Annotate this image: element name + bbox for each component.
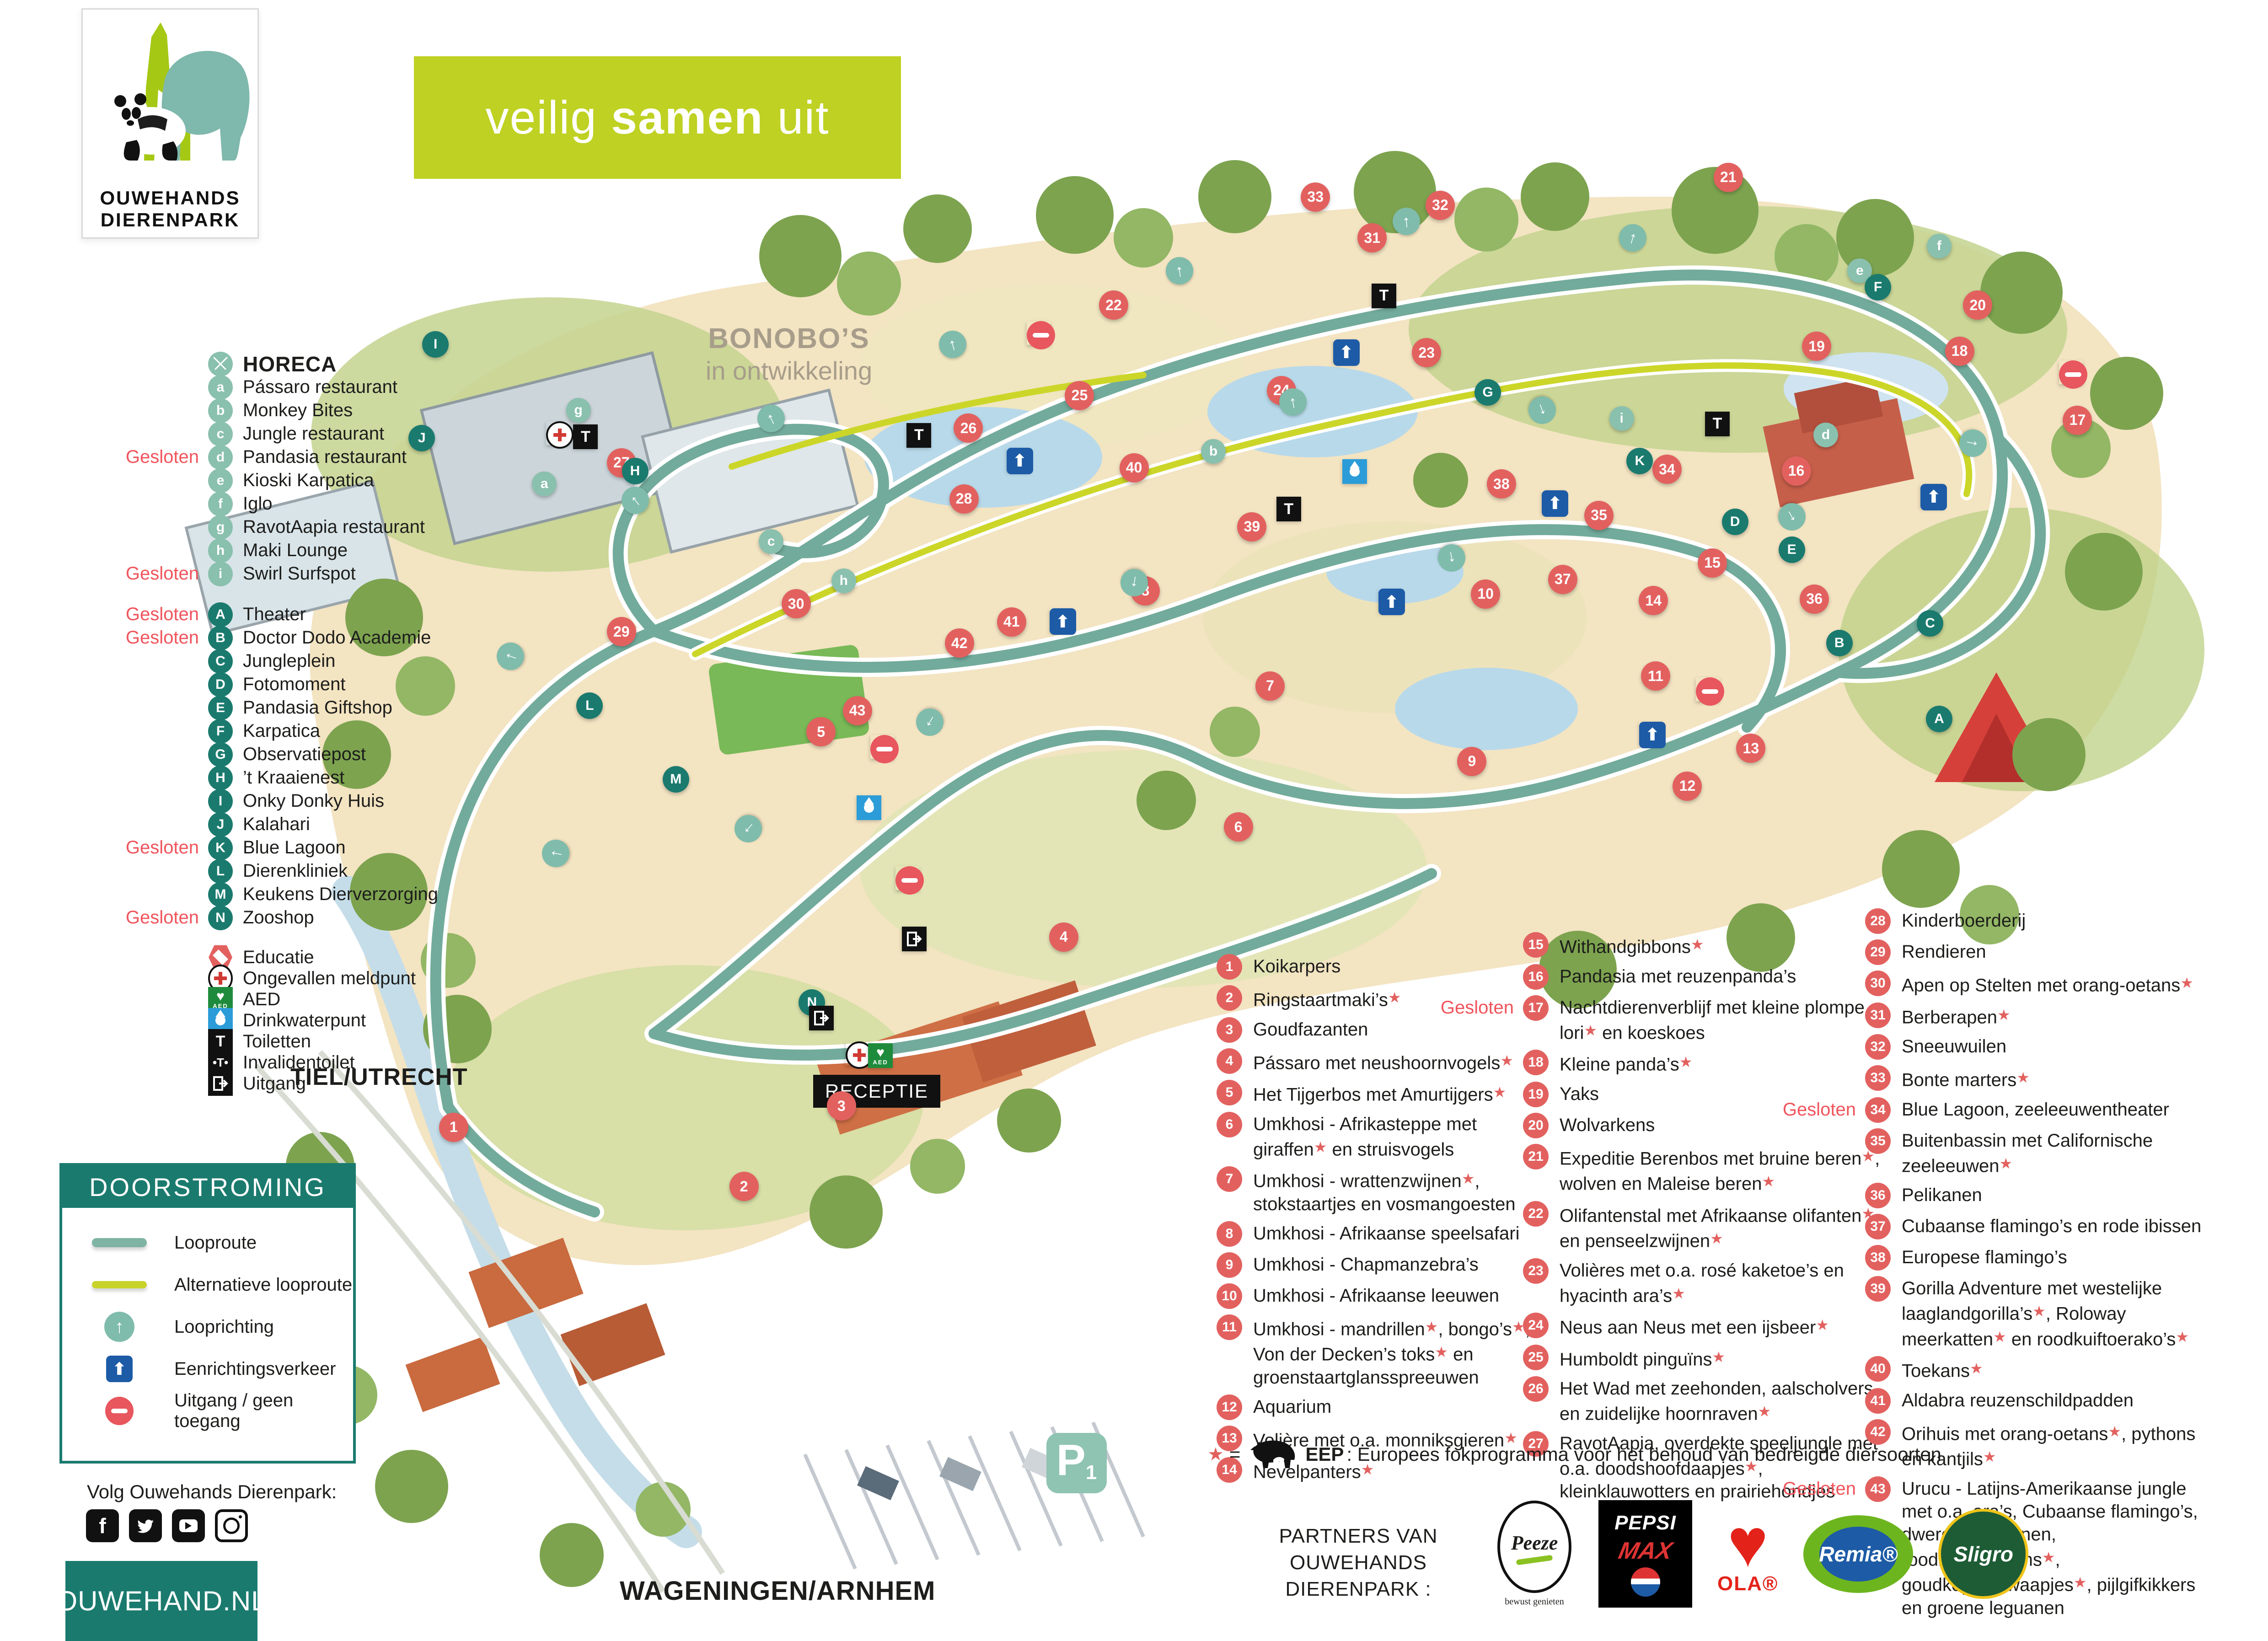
eep-star-mark: ★ [2176,1329,2189,1345]
map-marker-15: 15 [1698,548,1727,578]
doorstroming-label: Alternatieve looproute [174,1275,352,1295]
gesloten-label: Gesloten [1441,996,1514,1019]
doorstroming-title: DOORSTROMING [62,1166,353,1208]
horeca-item-i: Gesloten i Swirl Surfspot [208,562,734,585]
banner-bold: samen [611,91,763,144]
enclosure-item-40: 40 Toekans★ [1865,1357,2217,1383]
enclosure-label: Sneeuwuilen [1902,1035,2006,1060]
toilet-icon: T [1372,284,1396,308]
eep-star-mark: ★ [1493,1084,1507,1100]
enclosure-item-32: 32 Sneeuwuilen [1865,1035,2217,1060]
walking-direction-icon: ↑ [1616,221,1650,255]
map-marker-30: 30 [782,589,811,618]
map-marker-D: D [1722,509,1748,535]
enclosure-label: Europese flamingo’s [1902,1246,2067,1271]
map-exit-icon [809,1006,833,1030]
enclosure-badge-17: 17 [1523,995,1549,1021]
enclosure-label: Kleine panda’s★ [1560,1051,1692,1076]
location-badge-G: G [208,742,233,767]
banner-text: veilig samen uit [485,91,829,145]
enclosure-label: Cubaanse flamingo’s en rode ibissen [1902,1215,2201,1239]
map-marker-36: 36 [1800,585,1829,614]
map-marker-18: 18 [1945,337,1974,366]
enclosure-item-25: 25 Humboldt pinguïns★ [1523,1346,1898,1371]
max-word: MAX [1616,1537,1674,1565]
eep-star-mark: ★ [1435,1344,1448,1360]
enclosure-label: Orihuis met orang-oetans★, pythons en ka… [1902,1420,2217,1471]
enclosure-label: Aquarium [1253,1395,1331,1420]
location-item-C: C Jungleplein [208,649,734,673]
horeca-badge-h: h [208,538,233,563]
enclosure-badge-29: 29 [1865,939,1891,965]
partner-logos: Peeze bewust genieten PEPSI MAX ♥ OLA® R… [1496,1500,2028,1608]
enclosure-item-21: 21 Expeditie Berenbos met bruine beren★,… [1523,1145,1898,1196]
gesloten-label: Gesloten [126,627,199,648]
facility-label: Uitgang [243,1073,306,1094]
location-item-J: J Kalahari [208,813,734,836]
enclosure-label: Ringstaartmaki’s★ [1253,986,1401,1012]
map-oneway-icon: ⬆ [1542,490,1566,514]
map-marker-22: 22 [1099,290,1128,320]
sligro-logo: Sligro [1938,1509,2028,1599]
enclosure-label: Buitenbassin met Californische zeeleeuwe… [1902,1129,2217,1178]
map-marker-B: B [1826,630,1853,656]
enclosure-badge-15: 15 [1523,932,1549,958]
banner-pre: veilig [485,91,611,144]
enclosure-label: Umkhosi - mandrillen★, bongo’s★, Von der… [1253,1315,1537,1389]
map-marker-F: F [1865,274,1891,300]
ola-logo: ♥ OLA® [1717,1513,1778,1595]
enclosure-badge-16: 16 [1523,964,1549,990]
horeca-label: Pandasia restaurant [243,447,407,467]
map-marker-12: 12 [1673,772,1702,801]
alt-walking-route-icon [92,1281,147,1288]
enclosure-label: Bonte marters★ [1902,1066,2030,1092]
map-marker-17: 17 [2063,406,2092,435]
eep-star-mark: ★ [1983,1448,1996,1465]
enclosure-label: Blue Lagoon, zeeleeuwentheater [1902,1098,2169,1123]
doorstroming-item-noentry: Uitgang / geen toegang [90,1390,353,1432]
enclosure-item-3: 3 Goudfazanten [1217,1018,1537,1043]
walking-direction-icon: ↑ [1525,393,1560,428]
map-oneway-icon: ⬆ [1050,608,1073,632]
map-marker-9: 9 [1457,747,1486,776]
enclosure-label: Neus aan Neus met een ijsbeer★ [1560,1314,1829,1339]
enclosure-label: Gorilla Adventure met westelijke laaglan… [1902,1277,2217,1351]
location-label: ’t Kraaienest [243,767,344,788]
enclosure-badge-22: 22 [1523,1201,1549,1227]
eep-star-mark: ★ [1997,1007,2011,1023]
horeca-label: Iglo [243,493,273,514]
walking-route-icon [92,1238,147,1247]
location-item-D: D Fotomoment [208,673,734,696]
enclosure-badge-8: 8 [1217,1221,1242,1247]
enclosure-badge-9: 9 [1217,1252,1242,1278]
horeca-badge-a: a [208,375,233,400]
enclosure-badge-24: 24 [1523,1313,1549,1338]
facility-item-aed: ♥AED AED [208,989,734,1010]
enclosure-item-4: 4 Pássaro met neushoornvogels★ [1217,1049,1537,1075]
enclosure-item-33: 33 Bonte marters★ [1865,1066,2217,1092]
enclosure-badge-40: 40 [1865,1356,1891,1382]
enclosure-item-7: 7 Umkhosi - wrattenzwijnen★, stokstaartj… [1217,1167,1537,1216]
eep-star-mark: ★ [2108,1423,2121,1440]
enclosure-item-26: 26 Het Wad met zeehonden, aalscholvers e… [1523,1377,1898,1426]
eep-note: ★ = EEP : Europees fokprogramma voor het… [1207,1436,1941,1473]
eep-star-mark: ★ [2180,975,2193,991]
one-way-icon: ⬆ [1050,608,1076,635]
doorstroming-label: Looproute [174,1233,257,1253]
horeca-title: HORECA [243,352,337,376]
enclosure-badge-23: 23 [1523,1258,1549,1284]
location-badge-J: J [208,812,233,837]
location-label: Pandasia Giftshop [243,697,392,718]
walking-direction-icon: ↑ [1773,498,1811,536]
no-entry-icon [895,866,924,895]
enclosure-badge-2: 2 [1217,985,1242,1011]
eep-star-mark: ★ [2000,1155,2013,1172]
enclosure-item-28: 28 Kinderboerderij [1865,909,2217,934]
map-oneway-icon: ⬆ [1920,484,1944,508]
map-noentry-icon [895,866,919,890]
enclosure-label: Umkhosi - wrattenzwijnen★, stokstaartjes… [1253,1167,1537,1216]
banner-post: uit [763,91,829,144]
facility-label: Ongevallen meldpunt [243,968,416,989]
enclosure-badge-19: 19 [1523,1082,1549,1107]
eep-star-mark: ★ [1970,1360,1983,1377]
enclosure-badge-35: 35 [1865,1128,1891,1154]
walking-direction-icon: ↑ [1436,542,1468,574]
enclosure-item-22: 22 Olifantenstal met Afrikaanse olifante… [1523,1202,1898,1253]
enclosure-label: Nachtdierenverblijf met kleine plompe lo… [1560,996,1898,1045]
park-logo: OUWEHANDS DIERENPARK [81,8,259,239]
map-marker-31: 31 [1357,223,1387,252]
location-badge-H: H [208,766,233,790]
enclosure-label: Umkhosi - Afrikaanse leeuwen [1253,1284,1499,1309]
enclosure-item-9: 9 Umkhosi - Chapmanzebra’s [1217,1253,1537,1278]
enclosure-item-29: 29 Rendieren [1865,940,2217,965]
horeca-item-c: c Jungle restaurant [208,422,734,445]
enclosure-label: Kinderboerderij [1902,909,2026,934]
enclosure-label: Wolvarkens [1560,1114,1655,1138]
map-marker-40: 40 [1120,453,1149,483]
location-item-F: F Karpatica [208,719,734,743]
eep-bold: EEP [1305,1443,1344,1465]
location-badge-N: N [208,906,233,930]
horeca-item-h: h Maki Lounge [208,539,734,562]
pepsi-max-logo: PEPSI MAX [1598,1500,1692,1608]
website-box[interactable]: OUWEHAND.NL [65,1561,257,1641]
map-noentry-icon [870,735,894,759]
location-label: Kalahari [243,814,310,835]
enclosure-label: Pandasia met reuzenpanda’s [1560,965,1796,990]
map-marker-37: 37 [1548,565,1577,594]
facility-label: Drinkwaterpunt [243,1010,366,1031]
horeca-label: Swirl Surfspot [243,563,356,584]
toilet-icon: T [1705,412,1730,436]
map-marker-38: 38 [1487,469,1516,499]
one-way-icon: ⬆ [1920,484,1947,510]
horeca-label: Monkey Bites [243,400,353,421]
map-toilet-icon: T [1276,497,1300,520]
map-noentry-icon [2059,360,2083,384]
enclosure-label: Expeditie Berenbos met bruine beren★, wo… [1560,1145,1898,1196]
one-way-icon: ⬆ [106,1356,133,1382]
enclosure-badge-31: 31 [1865,1003,1891,1028]
location-label: Theater [243,604,306,625]
eep-star-mark: ★ [1388,989,1401,1006]
horeca-badge-d: d [208,445,233,470]
map-marker-34: 34 [1652,455,1682,484]
map-marker-41: 41 [997,607,1026,637]
map-marker-42: 42 [945,628,974,658]
enclosure-item-1: 1 Koikarpers [1217,955,1537,980]
gesloten-label: Gesloten [126,907,199,928]
map-water-icon [857,795,880,819]
map-firstaid-icon [846,1041,869,1065]
enclosure-item-24: 24 Neus aan Neus met een ijsbeer★ [1523,1314,1898,1339]
map-marker-C: C [1917,610,1943,637]
enclosure-badge-12: 12 [1217,1394,1242,1420]
toilet-icon: T [1276,497,1301,521]
enclosure-item-6: 6 Umkhosi - Afrikasteppe met giraffen★ e… [1217,1113,1537,1161]
location-badge-C: C [208,649,233,674]
eep-star-mark: ★ [1314,1139,1327,1155]
map-aed-icon: ♥AED [868,1043,892,1067]
one-way-icon: ⬆ [1378,589,1405,615]
one-way-icon: ⬆ [1007,448,1033,474]
location-label: Fotomoment [243,674,346,695]
enclosure-label: Aldabra reuzenschildpadden [1902,1389,2134,1414]
enclosure-label: Rendieren [1902,940,1986,965]
facility-item-toilet-disabled: •T• Invalidentoilet [208,1052,734,1073]
enclosure-label: Volières met o.a. rosé kaketoe’s en hyac… [1560,1259,1898,1308]
enclosure-badge-6: 6 [1217,1112,1242,1137]
eep-star-mark: ★ [1758,1403,1771,1420]
social-icons: f [86,1509,248,1542]
enclosure-item-34: Gesloten 34 Blue Lagoon, zeeleeuwentheat… [1865,1098,2217,1123]
map-oneway-icon: ⬆ [1639,722,1663,745]
horeca-list: a Pássaro restaurant b Monkey Bites c Ju… [208,375,734,585]
map-marker-25: 25 [1065,381,1094,410]
walking-direction-icon: ↑ [729,810,768,848]
location-label: Karpatica [243,721,320,741]
facility-item-firstaid: Ongevallen meldpunt [208,968,734,989]
map-water-icon [1342,459,1366,483]
map-marker-2: 2 [729,1172,759,1201]
enclosure-badge-30: 30 [1865,971,1891,996]
ola-heart-icon: ♥ [1717,1513,1778,1572]
location-label: Blue Lagoon [243,837,346,858]
rhino-icon [1246,1436,1301,1473]
map-marker-3: 3 [827,1091,856,1121]
walking-direction-icon: ↑ [753,400,789,437]
enclosure-label: Umkhosi - Afrikasteppe met giraffen★ en … [1253,1113,1537,1161]
map-exit-icon [902,927,926,950]
logo-line2: DIERENPARK [83,209,257,231]
horeca-badge-f: f [208,492,233,516]
enclosure-badge-34: 34 [1865,1097,1891,1123]
ola-name: OLA® [1717,1572,1778,1595]
gesloten-label: Gesloten [1783,1098,1856,1121]
map-marker-E: E [1779,536,1805,563]
enclosure-badge-3: 3 [1217,1017,1242,1043]
location-badge-I: I [208,789,233,814]
peeze-logo: Peeze bewust genieten [1496,1501,1573,1607]
map-marker-c: c [759,529,783,554]
enclosure-label: Het Wad met zeehonden, aalscholvers en z… [1560,1377,1898,1426]
location-item-N: Gesloten N Zooshop [208,906,734,929]
map-marker-5: 5 [806,717,836,746]
map-marker-1: 1 [439,1113,468,1142]
location-label: Dierenkliniek [243,861,348,881]
doorstroming-item-looproute: Looproute [90,1222,353,1264]
enclosure-label: Toekans★ [1902,1357,1983,1383]
toilet-icon: T [906,423,931,448]
partners-line1: PARTNERS VAN [1235,1523,1482,1550]
remia-logo: Remia® [1803,1515,1913,1593]
enclosure-badge-37: 37 [1865,1214,1891,1239]
enclosure-item-31: 31 Berberapen★ [1865,1003,2217,1029]
enclosure-badge-43: 43 [1865,1476,1891,1502]
location-badge-E: E [208,696,233,720]
map-marker-4: 4 [1049,922,1078,952]
enclosure-item-18: 18 Kleine panda’s★ [1523,1051,1898,1076]
map-marker-14: 14 [1639,586,1668,615]
enclosure-item-12: 12 Aquarium [1217,1395,1537,1420]
enclosure-badge-10: 10 [1217,1283,1242,1309]
horeca-badge-c: c [208,422,233,446]
enclosure-item-15: 15 Withandgibbons★ [1523,933,1898,959]
eep-star-mark: ★ [1691,936,1704,953]
legend-horeca-header: HORECA [208,352,734,375]
map-marker-19: 19 [1802,332,1831,361]
horeca-label: Pássaro restaurant [243,377,397,397]
enclosure-item-23: 23 Volières met o.a. rosé kaketoe’s en h… [1523,1259,1898,1308]
horeca-label: Maki Lounge [243,540,348,561]
youtube-icon[interactable] [172,1509,205,1542]
gesloten-label: Gesloten [126,604,199,625]
map-marker-23: 23 [1412,338,1441,367]
enclosure-item-5: 5 Het Tijgerbos met Amurtijgers★ [1217,1081,1537,1106]
location-item-L: L Dierenkliniek [208,859,734,883]
exit-icon [809,1006,834,1030]
walking-direction-icon: ↑ [936,328,969,361]
location-label: Observatiepost [243,744,366,765]
enclosure-label: Humboldt pinguïns★ [1560,1346,1725,1371]
facility-label: Educatie [243,947,314,968]
map-marker-35: 35 [1584,501,1614,530]
facility-item-exit: Uitgang [208,1073,734,1094]
enclosure-item-8: 8 Umkhosi - Afrikaanse speelsafari [1217,1222,1537,1247]
doorstroming-label: Looprichting [174,1317,274,1337]
enclosure-badge-5: 5 [1217,1080,1242,1105]
doorstroming-item-alt-looproute: Alternatieve looproute [90,1264,353,1306]
location-item-G: G Observatiepost [208,743,734,766]
enclosure-item-35: 35 Buitenbassin met Californische zeelee… [1865,1129,2217,1178]
enclosure-label: Het Tijgerbos met Amurtijgers★ [1253,1081,1506,1106]
gesloten-label: Gesloten [1783,1477,1856,1500]
map-marker-32: 32 [1426,191,1455,220]
location-badge-B: B [208,626,233,650]
enclosure-badge-21: 21 [1523,1144,1549,1169]
map-marker-G: G [1474,379,1501,406]
eep-star-mark: ★ [2016,1069,2030,1086]
enclosure-badge-18: 18 [1523,1050,1549,1075]
map-marker-A: A [1926,706,1952,732]
location-badge-D: D [208,672,233,697]
map-marker-28: 28 [949,484,979,514]
map-oneway-icon: ⬆ [1333,339,1357,363]
eep-star-mark: ★ [1710,1230,1723,1247]
peeze-name: Peeze [1511,1531,1558,1555]
logo-line1: OUWEHANDS [83,187,257,209]
facebook-icon[interactable]: f [86,1509,119,1542]
enclosure-list-col1: 1 Koikarpers 2 Ringstaartmaki’s★ 3 Goudf… [1217,955,1537,1490]
drinking-water-icon [1342,459,1367,484]
enclosure-badge-41: 41 [1865,1388,1891,1414]
map-marker-h: h [831,568,856,593]
enclosure-badge-38: 38 [1865,1245,1891,1271]
enclosure-label: Withandgibbons★ [1560,933,1704,959]
walking-direction-icon: ↑ [104,1312,134,1342]
map-toilet-icon: T [1372,284,1395,307]
aed-icon: ♥AED [868,1043,893,1068]
one-way-icon: ⬆ [1333,339,1360,366]
horeca-badge-e: e [208,468,233,493]
enclosure-item-36: 36 Pelikanen [1865,1184,2217,1208]
map-marker-d: d [1813,423,1838,447]
one-way-icon: ⬆ [1542,490,1568,517]
enclosure-badge-25: 25 [1523,1345,1549,1370]
enclosure-badge-39: 39 [1865,1276,1891,1302]
gesloten-label: Gesloten [126,447,199,467]
location-item-I: I Onky Donky Huis [208,789,734,813]
enclosure-item-41: 41 Aldabra reuzenschildpadden [1865,1389,2217,1414]
enclosure-label: Pássaro met neushoornvogels★ [1253,1049,1513,1075]
map-marker-b: b [1201,439,1226,464]
enclosure-list-col2: 15 Withandgibbons★ 16 Pandasia met reuze… [1523,933,1898,1509]
gesloten-label: Gesloten [126,837,199,858]
enclosure-label: Umkhosi - Afrikaanse speelsafari [1253,1222,1519,1247]
remia-name: Remia® [1819,1542,1898,1566]
social-heading: Volg Ouwehands Dierenpark: [87,1481,337,1503]
eep-star: ★ [1207,1444,1224,1465]
pepsi-globe-icon [1631,1567,1660,1597]
eep-text: : Europees fokprogramma voor het behoud … [1346,1443,1941,1465]
fork-knife-icon [208,352,233,376]
location-item-H: H ’t Kraaienest [208,766,734,789]
horeca-item-b: b Monkey Bites [208,399,734,422]
facility-item-water: Drinkwaterpunt [208,1010,734,1031]
eep-star-mark: ★ [1672,1285,1685,1302]
instagram-icon[interactable] [215,1509,248,1542]
location-item-A: Gesloten A Theater [208,603,734,626]
location-label: Keukens Dierverzorging [243,884,438,905]
enclosure-label: Pelikanen [1902,1184,1982,1208]
campaign-banner: veilig samen uit [414,56,901,179]
location-item-E: E Pandasia Giftshop [208,696,734,719]
location-badge-L: L [208,859,233,884]
enclosure-badge-20: 20 [1523,1113,1549,1138]
eep-star-mark: ★ [2074,1574,2087,1591]
location-badge-F: F [208,719,233,744]
twitter-icon[interactable] [129,1509,162,1542]
enclosure-item-37: 37 Cubaanse flamingo’s en rode ibissen [1865,1215,2217,1239]
enclosure-badge-33: 33 [1865,1065,1891,1091]
eep-equals: = [1229,1443,1241,1465]
horeca-item-f: f Iglo [208,492,734,515]
